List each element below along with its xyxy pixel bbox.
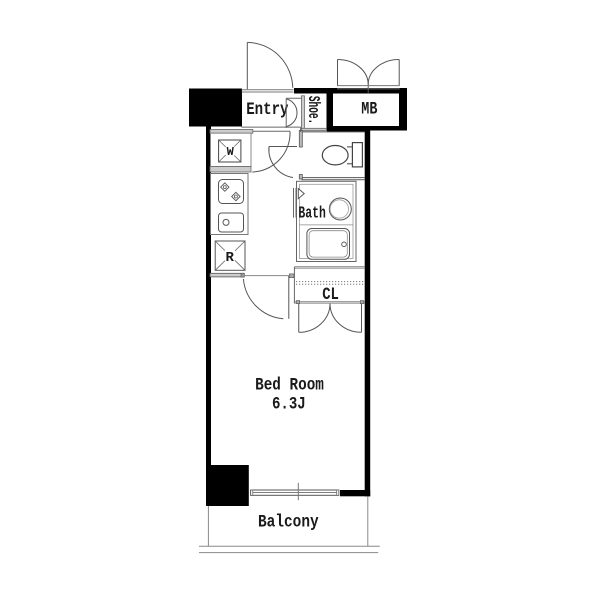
svg-text:W: W [227, 145, 235, 159]
svg-text:R: R [225, 250, 234, 266]
svg-text:Shoe.: Shoe. [304, 96, 323, 124]
svg-text:Balcony: Balcony [258, 512, 319, 532]
svg-text:Entry: Entry [246, 100, 289, 120]
svg-text:6.3J: 6.3J [272, 394, 306, 414]
svg-text:Bed Room: Bed Room [255, 376, 324, 396]
svg-text:Bath: Bath [298, 204, 325, 223]
svg-text:MB: MB [361, 100, 377, 120]
